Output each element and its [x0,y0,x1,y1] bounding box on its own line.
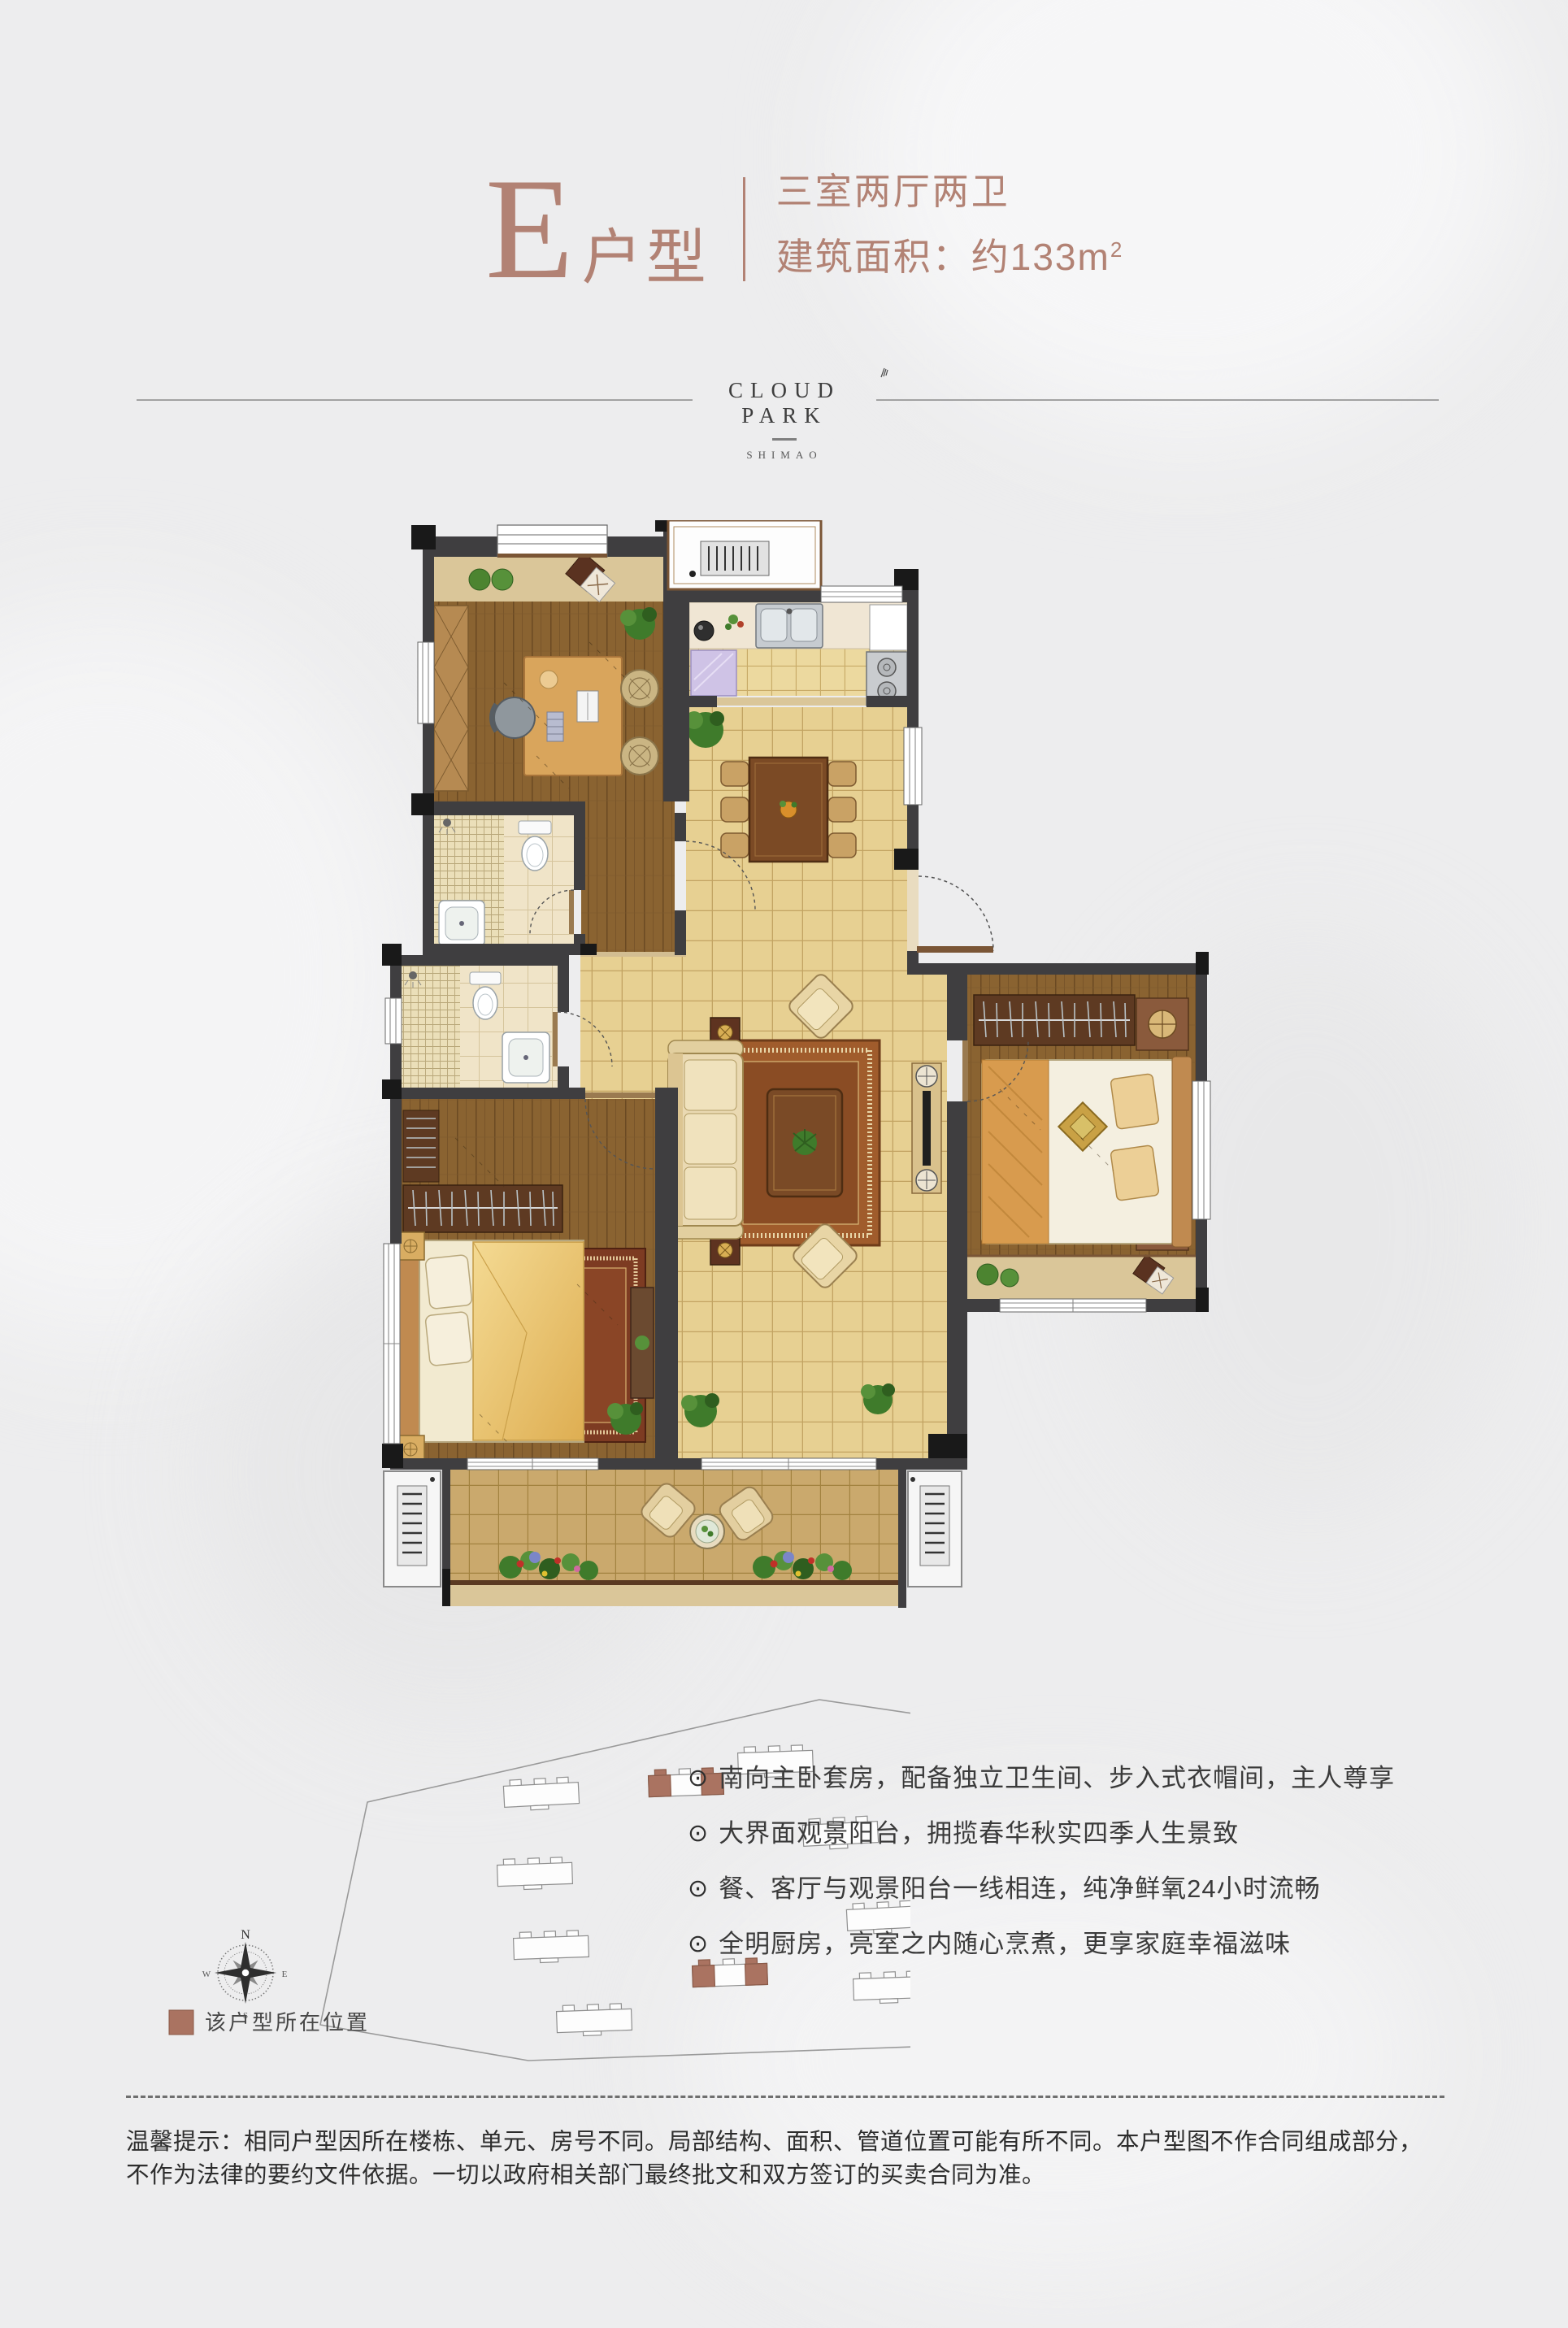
brand-rule-left [137,399,693,401]
building-outline [503,1777,580,1812]
balcony-outer-strip [450,1585,898,1606]
bath2-wet-floor [402,966,460,1088]
brand-tick [772,438,797,441]
window [384,1244,400,1444]
bed [397,1232,584,1463]
legend-swatch [169,2010,193,2035]
window [821,586,902,602]
bullet-icon: ⊙ [688,1926,709,1962]
sink-basin [761,609,787,641]
headboard [400,1239,419,1444]
pillow [1110,1074,1159,1130]
feature-text: 南向主卧套房，配备独立卫生间、步入式衣帽间，主人尊享 [719,1761,1395,1796]
unit-letter: E [485,176,574,283]
compass-rose-icon: N S W E [202,1928,288,2021]
door-leaf [553,1012,558,1066]
toilet-tank [519,821,551,834]
dresser [631,1288,654,1398]
plant-icon [635,1336,649,1350]
sliding-door [701,1458,876,1470]
wardrobe-hangers [974,995,1135,1045]
floor-plan-drawing [382,520,1244,1658]
tv-stand [912,1063,941,1193]
entry-door-swing [919,876,993,951]
compass-east-label: E [282,1970,288,1979]
door-leaf [585,1092,655,1098]
window [904,727,922,805]
bullet-icon: ⊙ [688,1871,709,1907]
entry-door-leaf [917,946,993,953]
compass-west-label: W [202,1970,211,1979]
brand-name: CLOUD PARK [683,378,886,428]
poster-page: E 户型 三室两厅两卫 建筑面积：约133m2 CLOUD PARK SHIMA… [0,0,1568,2328]
door-leaf [962,1040,968,1101]
building-outline [497,1857,572,1890]
pillow [1110,1145,1159,1201]
toilet-tank [470,972,501,984]
feature-text: 大界面观景阳台，拥揽春华秋实四季人生景致 [719,1816,1239,1852]
pot [694,621,714,641]
desk-bowl [540,671,558,688]
disclaimer-section: 温馨提示：相同户型因所在楼栋、单元、房号不同。局部结构、面积、管道位置可能有所不… [126,2096,1444,2192]
office-chair [494,697,535,738]
wardrobe-hangers [403,1185,562,1232]
ac-unit-icon [908,1471,962,1587]
feature-text: 餐、客厅与观景阳台一线相连，纯净鲜氧24小时流畅 [719,1871,1320,1907]
headboard [1172,1057,1192,1247]
shower-icon [443,819,451,827]
plant-icon [1001,1269,1019,1287]
sliding-door [467,1458,598,1470]
desk [524,657,622,775]
bath1-floor [504,815,574,944]
coffee-table [767,1089,842,1197]
plant-icon [469,569,490,590]
legend-label: 该户型所在位置 [205,2011,370,2035]
nightstand [1136,998,1188,1050]
feature-item: ⊙大界面观景阳台，拥揽春华秋实四季人生景致 [688,1816,1419,1852]
toilet [473,987,497,1019]
wicker-chair [621,670,658,707]
window [1192,1081,1210,1219]
vent-grille-icon [701,541,769,575]
area-label: 建筑面积：约133m [776,236,1110,278]
duvet [473,1242,584,1440]
compass-north-label: N [241,1928,250,1942]
window [418,642,434,723]
plant-icon [977,1264,998,1285]
bed [982,1057,1192,1247]
window [385,998,402,1044]
feature-item: ⊙餐、客厅与观景阳台一线相连，纯净鲜氧24小时流畅 [688,1871,1419,1907]
background-texture [0,610,415,1341]
vestibule-floor [581,801,675,955]
area-superscript: 2 [1110,237,1123,262]
dashed-divider [126,2096,1444,2098]
shower-icon [409,971,417,979]
brand-leaf-icon [880,367,889,378]
kitchen-cabinet [870,605,907,650]
unit-header: E 户型 三室两厅两卫 建筑面积：约133m2 [485,172,1123,283]
bullet-icon: ⊙ [688,1761,709,1796]
faucet [787,609,793,615]
bay-window [497,525,607,558]
study-bay-floor [434,557,663,602]
feature-item: ⊙全明厨房，亮室之内随心烹煮，更享家庭幸福滋味 [688,1926,1419,1962]
service-box [668,520,821,589]
unit-suffix: 户型 [582,232,710,283]
disclaimer-text: 温馨提示：相同户型因所在楼栋、单元、房号不同。局部结构、面积、管道位置可能有所不… [126,2126,1444,2192]
brand-name-text: CLOUD PARK [728,378,840,428]
floor-plan [382,520,1244,1658]
site-legend: 该户型所在位置 [169,2010,370,2035]
pillow [425,1311,472,1366]
pillow [425,1254,472,1309]
ac-unit-icon [384,1471,441,1587]
toilet [522,836,548,871]
fan-icon [689,571,696,577]
building-outline [556,2003,632,2036]
door-leaf [569,890,574,934]
entry-opening [907,870,919,951]
bullet-icon: ⊙ [688,1816,709,1852]
brand-logo: CLOUD PARK SHIMAO [0,362,1568,451]
building-outline [513,1930,589,1963]
burner-icon [878,658,896,676]
plant-icon [492,569,513,590]
feature-item: ⊙南向主卧套房，配备独立卫生间、步入式衣帽间，主人尊享 [688,1761,1419,1796]
kitchen-threshold [717,697,867,706]
brand-subname: SHIMAO [683,449,886,462]
window [1000,1299,1146,1312]
feature-list: ⊙南向主卧套房，配备独立卫生间、步入式衣帽间，主人尊享 ⊙大界面观景阳台，拥揽春… [688,1761,1419,1982]
rooms-line: 三室两厅两卫 [776,162,1124,215]
sofa [668,1040,743,1239]
header-divider [743,177,745,281]
closet-strip [403,1110,439,1182]
sink-basin [791,609,817,641]
unit-description: 三室两厅两卫 建筑面积：约133m2 [776,162,1124,283]
brand-center: CLOUD PARK SHIMAO [683,378,886,462]
area-line: 建筑面积：约133m2 [776,228,1124,281]
brand-rule-right [876,399,1439,401]
balcony-rail [450,1580,898,1585]
balcony-table [690,1514,724,1548]
wicker-chair [621,737,658,775]
feature-text: 全明厨房，亮室之内随心烹煮，更享家庭幸福滋味 [719,1926,1291,1962]
